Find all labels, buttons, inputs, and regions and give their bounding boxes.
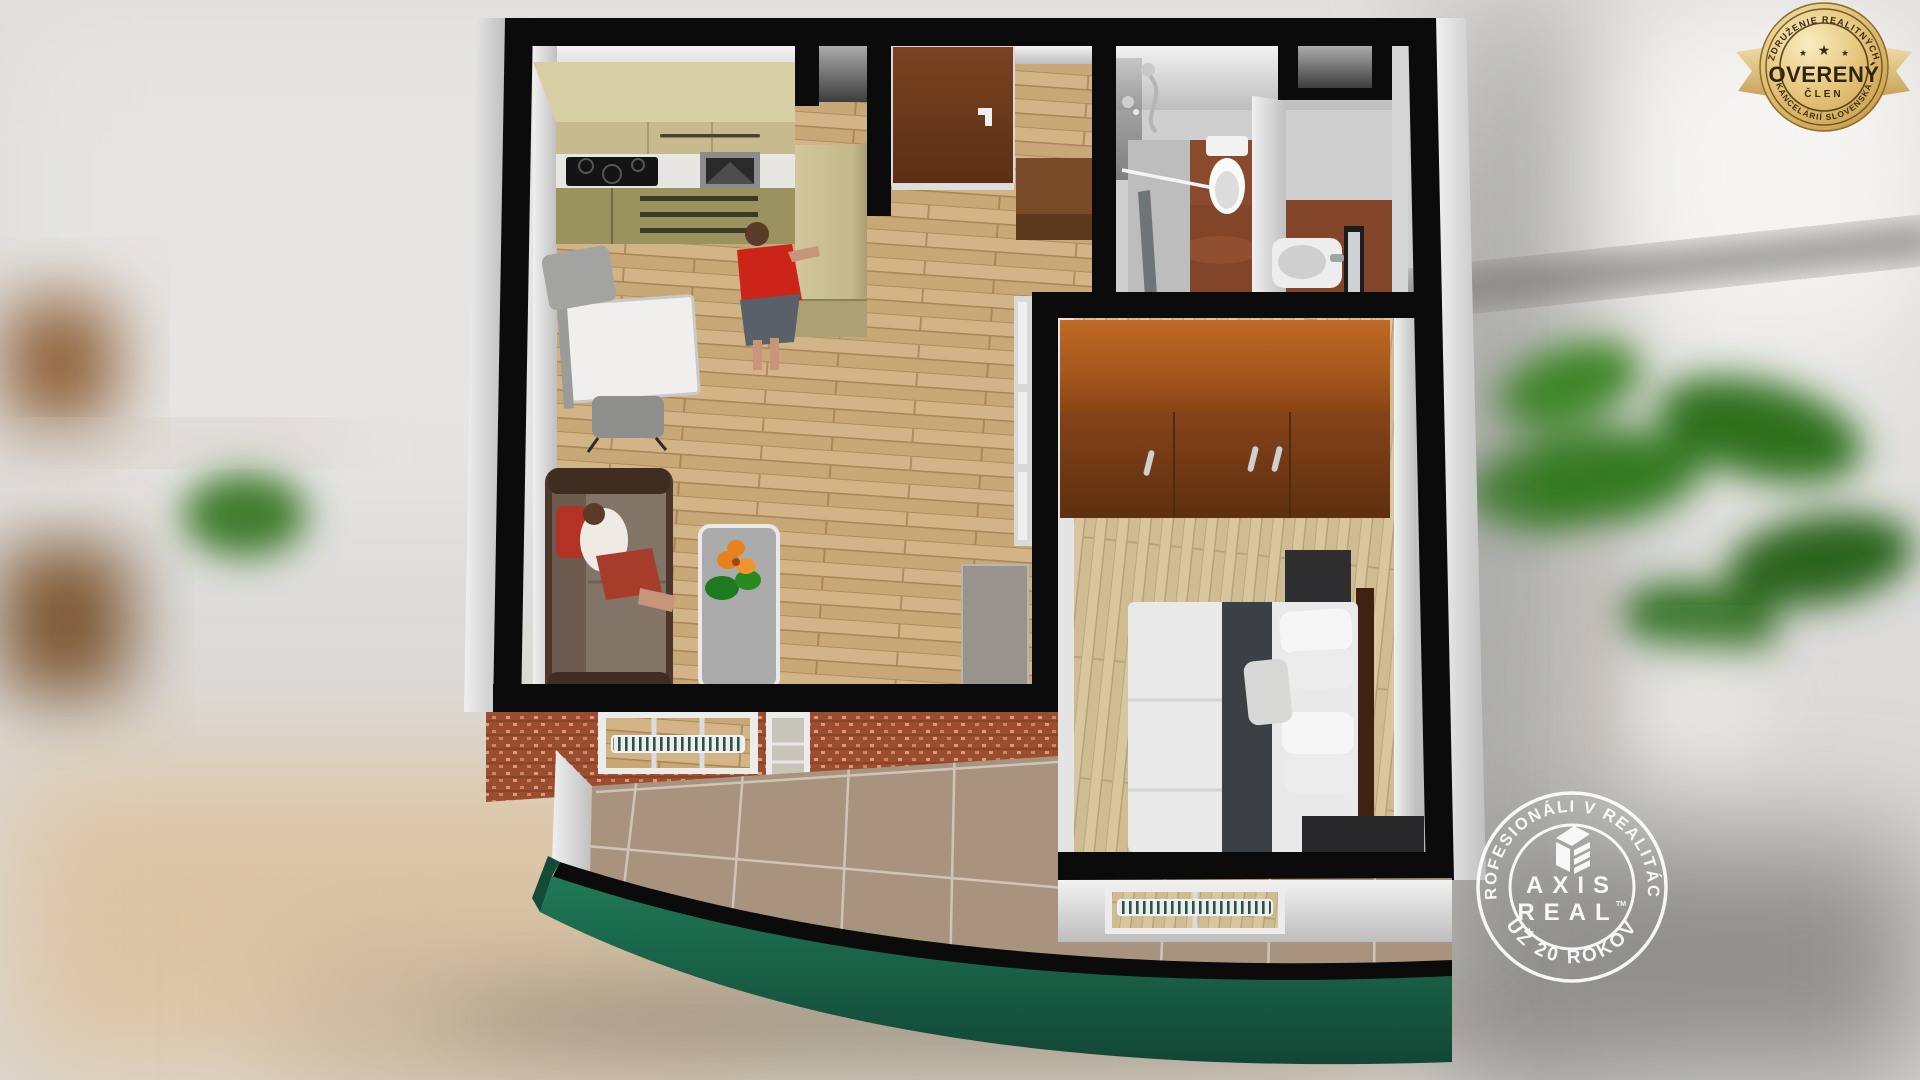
star-icon: ★: [1799, 48, 1807, 58]
small-pillow: [1243, 658, 1293, 726]
kitchen-tall-cabinet: [795, 145, 867, 337]
bed-pillow: [1283, 648, 1355, 692]
bed-pillow: [1282, 712, 1354, 754]
person-head: [745, 222, 769, 246]
star-icon: ★: [1841, 48, 1849, 58]
wall-living-bottom: [493, 684, 1058, 712]
wall-top: [505, 18, 1436, 46]
radiator: [1118, 900, 1272, 915]
bathroom-niche: [1298, 46, 1372, 88]
bed-pillow: [1284, 754, 1354, 794]
background-white-pot: [1630, 655, 1770, 755]
bathroom-right-wall-face: [1392, 46, 1408, 292]
background-brown-frame: [5, 300, 115, 425]
watermark-brand-top: AXIS: [1526, 872, 1618, 899]
star-icon: ★: [1818, 42, 1831, 58]
apartment-model: [464, 18, 1486, 1064]
dining-table: [556, 290, 699, 409]
dining-chair: [541, 245, 618, 312]
kitchen-upper-cabinets-front: [556, 122, 795, 154]
wardrobe: [1060, 320, 1390, 518]
bed-bench: [1302, 816, 1424, 854]
glazed-door-frames: [1014, 296, 1032, 546]
background-shelf: [0, 430, 340, 456]
background-small-plant: [183, 473, 307, 557]
sideboard: [962, 565, 1028, 689]
wall-kitchen-hall: [867, 46, 891, 216]
wall-hall-bathroom: [1092, 46, 1116, 318]
bidet: [1272, 238, 1344, 288]
real-estate-render-canvas: ZDRUŽENIE REALITNÝCH KANCELÁRIÍ SLOVENSK…: [0, 0, 1920, 1080]
bathroom-door-handle-icon: [1133, 109, 1139, 115]
bedroom-outer-wall: [1058, 880, 1452, 942]
bidet-tap-icon: [1330, 254, 1344, 262]
bedroom-right-wall-face: [1394, 318, 1416, 852]
coffee-table: [700, 526, 778, 688]
wall-bedroom-bottom: [1058, 852, 1440, 880]
cabinet-handle-icon: [660, 134, 760, 138]
kitchen-upper-cabinets-top: [533, 62, 795, 122]
entry-door: [892, 46, 1014, 184]
nightstand: [1285, 550, 1351, 604]
door-threshold: [892, 184, 1014, 190]
oven: [700, 152, 760, 188]
watermark-trademark: TM: [1616, 901, 1626, 908]
cooktop: [566, 157, 658, 186]
person-head: [583, 503, 605, 525]
radiator: [612, 736, 744, 752]
floorplan-3d-render: ZDRUŽENIE REALITNÝCH KANCELÁRIÍ SLOVENSK…: [0, 0, 1920, 1080]
shower-head-icon: [1141, 63, 1155, 77]
badge-subtitle: ČLEN: [1804, 87, 1843, 100]
badge-title: OVERENÝ: [1768, 62, 1879, 87]
bed-runner: [1222, 602, 1272, 852]
sofa-armrest: [548, 468, 670, 494]
wall-niche-bottom: [1278, 86, 1392, 100]
watermark-brand-bottom: REAL: [1517, 899, 1618, 926]
shower-floor: [1128, 140, 1190, 292]
bed-pillow: [1279, 608, 1354, 655]
living-room-window: [598, 712, 758, 774]
wall-bathroom-bedroom: [1058, 292, 1430, 318]
shower-valve-icon: [1122, 96, 1134, 108]
hall-cabinet: [1016, 158, 1092, 240]
background-brown-furniture: [0, 545, 130, 695]
dining-chair: [592, 396, 664, 438]
wall-stub-kitchen: [795, 46, 819, 106]
kitchen-niche: [819, 46, 867, 102]
